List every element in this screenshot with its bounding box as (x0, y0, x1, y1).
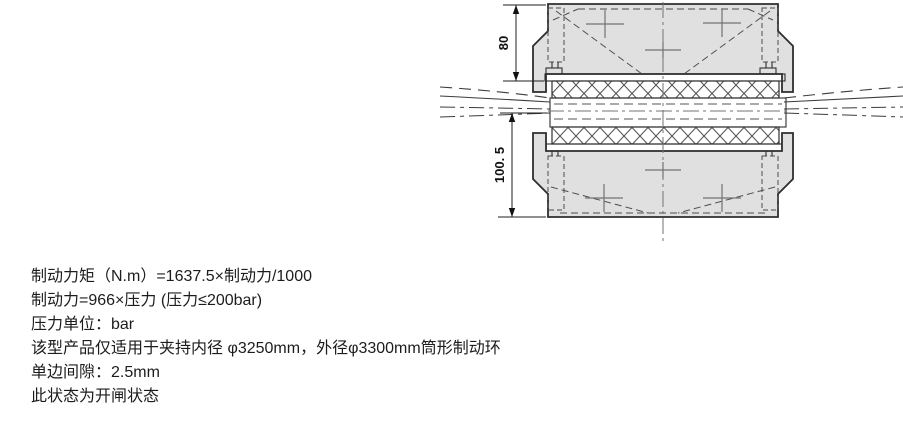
brake-caliper-diagram: 80 100. 5 (0, 0, 903, 255)
note-line-force: 制动力=966×压力 (压力≤200bar) (31, 289, 501, 313)
note-line-state: 此状态为开闸状态 (31, 385, 501, 409)
backing-plate-bottom (545, 144, 785, 151)
ring-arc (440, 107, 550, 109)
note-line-pressure: 压力单位：bar (31, 313, 501, 337)
backing-plate-top (545, 74, 785, 81)
ring-band (550, 98, 786, 127)
note-line-diameter: 该型产品仅适用于夹持内径 φ3250mm，外径φ3300mm筒形制动环 (31, 337, 501, 361)
arrow-down (509, 208, 515, 217)
brake-ring-section (548, 98, 788, 127)
friction-lining-hatch (552, 127, 779, 144)
friction-lining-hatch (552, 81, 779, 98)
ring-arc (784, 96, 903, 102)
note-line-torque: 制动力矩（N.m）=1637.5×制动力/1000 (31, 265, 501, 289)
friction-pad-bottom (545, 127, 785, 151)
ring-arc (440, 113, 550, 117)
brake-ring-arcs-right (784, 87, 903, 117)
dimension-label-100-5: 100. 5 (492, 147, 507, 183)
friction-pad-top (545, 74, 785, 98)
spec-notes: 制动力矩（N.m）=1637.5×制动力/1000 制动力=966×压力 (压力… (31, 265, 501, 409)
dimension-label-80: 80 (496, 36, 511, 50)
ring-arc (440, 96, 550, 102)
arrow-down (513, 72, 519, 81)
page: { "diagram": { "dimension_labels": { "up… (0, 0, 903, 429)
ring-arc (784, 113, 903, 117)
ring-arc (784, 107, 903, 109)
note-line-clearance: 单边间隙：2.5mm (31, 361, 501, 385)
arrow-up (513, 5, 519, 14)
